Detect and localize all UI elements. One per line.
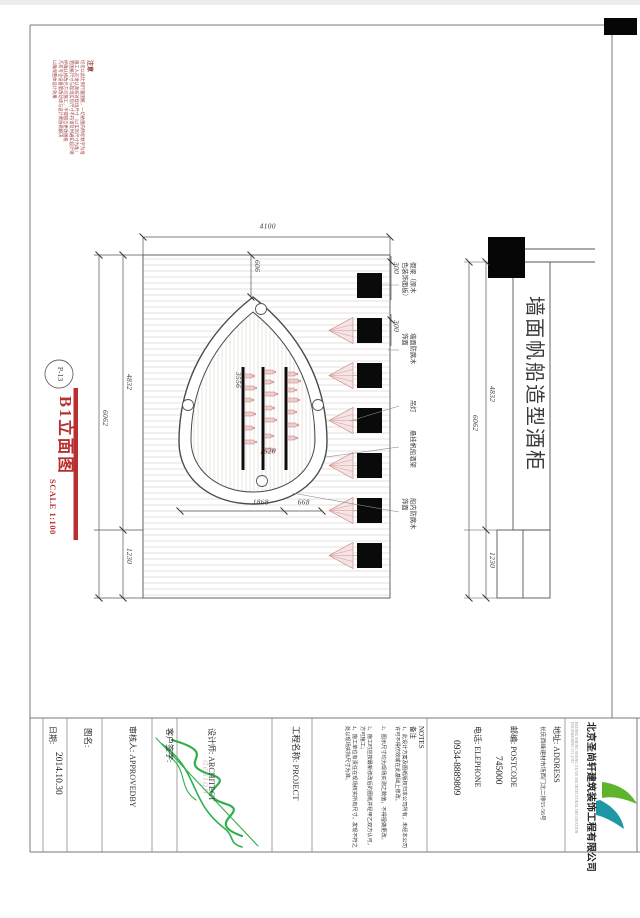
- section-beam-cut: [488, 237, 525, 278]
- notes-item-2: 2、图示尺寸均为现场实测之数值，不得擅做更改。: [379, 726, 386, 848]
- beam-square: [357, 453, 382, 478]
- boat-cabinet: [179, 297, 327, 504]
- notes-item-1: 1、此设计方案及图纸版权归本公司所有，未经本公司许可不得仿效或在此基础上修改。: [394, 726, 407, 848]
- callout-line: 悬挂帆船酒架: [409, 430, 416, 468]
- dim-6062-bottom: 6062: [100, 410, 109, 426]
- callout-line: 船内防腐木: [409, 498, 416, 529]
- dim-3556: 3556: [233, 372, 242, 388]
- dim-1868: 1868: [241, 499, 281, 508]
- approver-label: 审核人: APPROVEDBY: [128, 726, 137, 808]
- callout-boat-finish: 船内防腐木 饰面: [401, 498, 416, 560]
- dim-6062-top: 6062: [470, 415, 479, 431]
- binding-corner-mark: [604, 18, 637, 35]
- callout-line: 色装饰面板）: [401, 262, 408, 300]
- client-signature-label: 客户签字:: [165, 728, 174, 762]
- notice-line: 施工人员请认真核对现场尺寸（以实际尺寸为准）: [74, 60, 80, 202]
- beam-square: [357, 498, 382, 523]
- dim-4832-top: 4832: [487, 386, 496, 402]
- title-block-grid: [43, 718, 565, 852]
- page-edge: [0, 0, 640, 5]
- sheet-frame: [30, 25, 640, 852]
- dim-4832-bottom: 4832: [124, 374, 133, 390]
- beam-square: [357, 273, 382, 298]
- dim-668: 668: [284, 499, 324, 508]
- phone-label: 电话: ELEPHONE: [473, 726, 482, 788]
- drawing-title: B1立面图: [55, 396, 74, 475]
- drawing-scale: SCALE 1:100: [47, 479, 57, 535]
- section-title: 墙面帆船造型酒柜: [522, 296, 545, 472]
- fake-beam-squares: [357, 273, 382, 568]
- callout-line: 墙面防腐木: [409, 333, 416, 364]
- logo-teal-sail: [596, 800, 624, 829]
- dim-4100: 4100: [248, 223, 288, 232]
- project-label: 工程名称: PROJECT: [290, 726, 300, 800]
- dim-1230-bottom: 1230: [124, 548, 133, 564]
- sheet-name-label: 图名:: [82, 728, 92, 747]
- callout-line: 吊灯: [409, 400, 416, 413]
- callout-line: 假梁（原木: [409, 262, 416, 293]
- postcode-value: 745000: [492, 756, 503, 785]
- beam-square: [357, 543, 382, 568]
- beam-square: [357, 363, 382, 388]
- callout-line: 饰面: [401, 333, 408, 346]
- dim-300-b: 300: [391, 320, 400, 332]
- callout-fake-beam: 假梁（原木 色装饰面板）: [401, 262, 416, 324]
- dim-606: 606: [252, 260, 261, 272]
- notes-item-3: 3、施工时应按最新修改后的图纸并经甲乙双方认可，方可施工；: [359, 726, 372, 848]
- date-value: 2014.10.30: [52, 752, 63, 795]
- notes-title-cn: 备注: [409, 726, 416, 739]
- notes-item-4: 4、施工单位有责任在现场核实所有尺寸，发现不符之处以现场实际尺寸为准。: [344, 726, 357, 848]
- notes-title-en: NOTES: [417, 726, 425, 749]
- company-name-en: BEIJING SHENG SHANG XUAN ARCHITECTURAL D…: [569, 722, 578, 852]
- notice-line: 经确认修改后方可施工，不得擅自更改图纸: [63, 60, 69, 202]
- notice-title: 注意: [86, 60, 95, 202]
- notice-block: 注意 切勿以此比例尺量图纸，一切依图内所标数字为准 施工人员请认真核对现场尺寸（…: [51, 60, 95, 202]
- phone-value: 0934-8889809: [450, 740, 461, 795]
- dim-1626: 1626: [248, 448, 288, 457]
- address-label: 地址: ADDRESS: [552, 726, 561, 783]
- logo-green-sail: [602, 782, 637, 804]
- date-label: 日期:: [48, 726, 57, 744]
- notice-line: 若图纸尺寸与现场实际尺寸不符请及时通知设计师: [68, 60, 74, 202]
- dim-300-a: 300: [391, 262, 400, 274]
- detail-ref-bubble: P-13: [55, 354, 64, 394]
- notice-line: 凡有专业设备需改动请与设计师协商解决: [57, 60, 63, 202]
- architect-label: 设计师: ARCHITECT: [207, 728, 216, 801]
- company-name: 北京圣尚轩建筑装饰工程有限公司: [585, 722, 596, 872]
- notice-line: 切勿以此比例尺量图纸，一切依图内所标数字为准: [79, 60, 85, 202]
- postcode-label: 邮编: POSTCODE: [509, 726, 518, 788]
- callout-wall-finish: 墙面防腐木 饰面: [401, 333, 416, 395]
- beam-square: [357, 408, 382, 433]
- screenshot-canvas: 注意 切勿以此比例尺量图纸，一切依图内所标数字为准 施工人员请认真核对现场尺寸（…: [0, 0, 640, 918]
- callout-line: 饰面: [401, 498, 408, 511]
- company-logo: [596, 782, 637, 829]
- address-value: 长庆西峰建材市场西门北二排55-56号: [538, 726, 545, 821]
- beam-square: [357, 318, 382, 343]
- dim-1230-top: 1230: [487, 552, 496, 568]
- drawing-sheet: 注意 切勿以此比例尺量图纸，一切依图内所标数字为准 施工人员请认真核对现场尺寸（…: [0, 0, 640, 918]
